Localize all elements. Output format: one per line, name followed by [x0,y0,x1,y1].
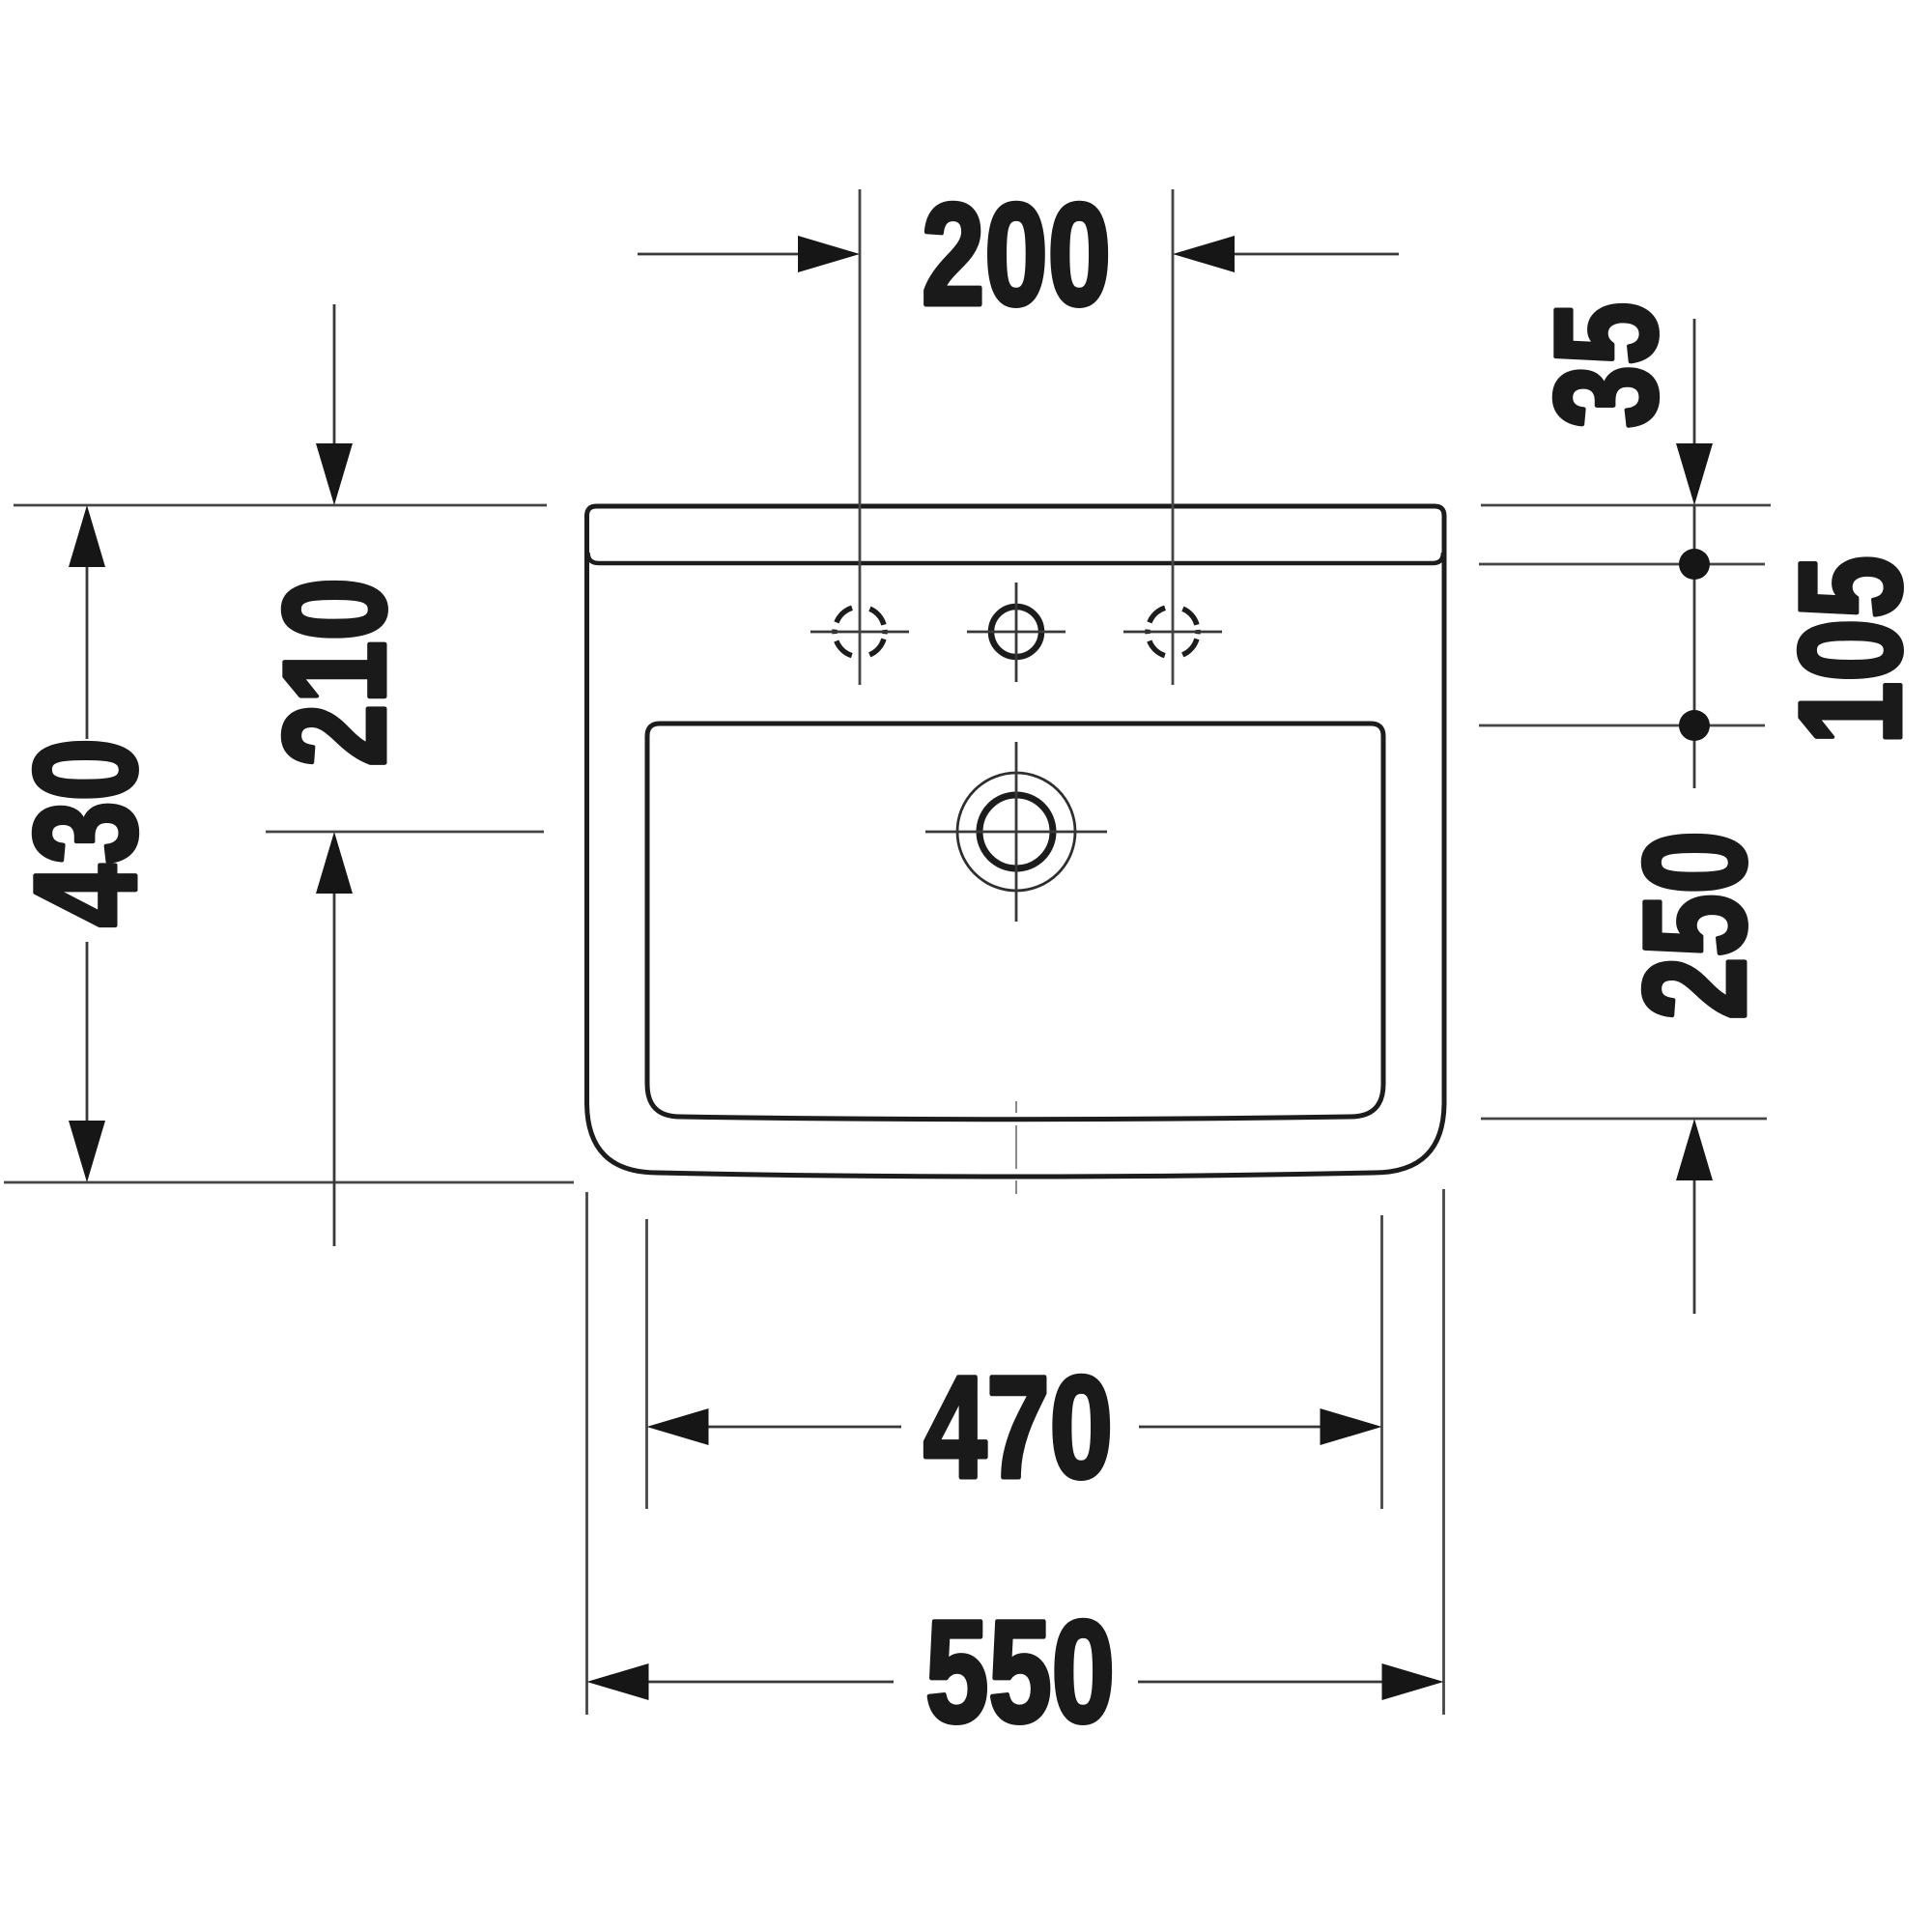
svg-text:200: 200 [922,173,1111,335]
svg-text:550: 550 [925,1590,1115,1752]
svg-text:35: 35 [1524,302,1687,429]
svg-text:470: 470 [923,1346,1113,1508]
svg-text:210: 210 [253,578,415,767]
svg-text:430: 430 [4,738,166,927]
svg-text:105: 105 [1769,555,1931,745]
svg-text:250: 250 [1613,831,1776,1020]
